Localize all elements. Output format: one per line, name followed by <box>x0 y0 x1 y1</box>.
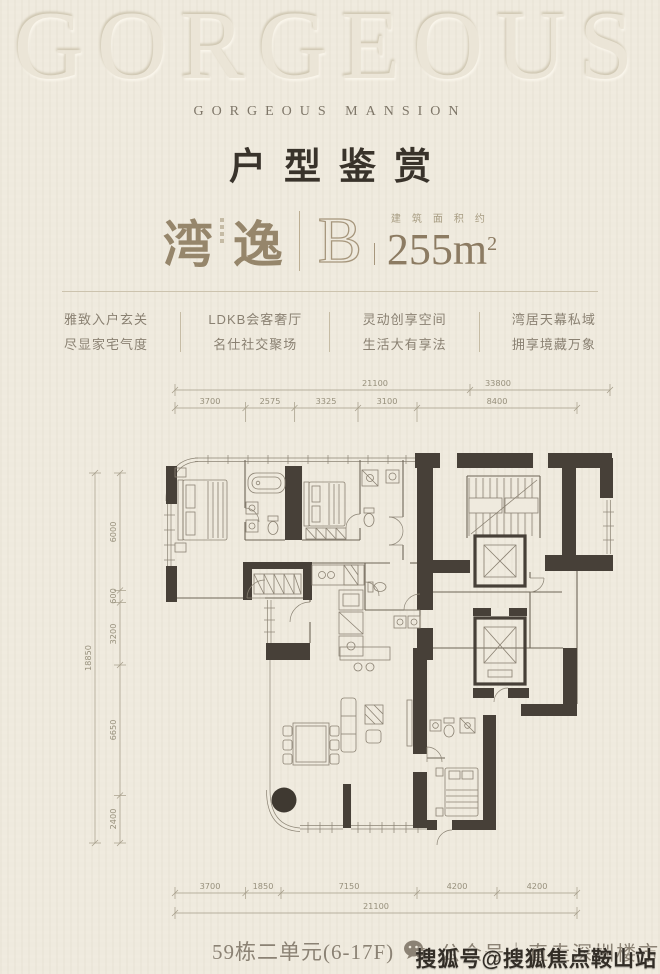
dim-bottom-seg: 4200 <box>527 881 548 891</box>
dining-table-icon <box>283 723 339 765</box>
bed-icon <box>175 468 227 552</box>
page-title: 户型鉴赏 <box>0 136 660 190</box>
dim-top-total-2: 33800 <box>485 378 511 388</box>
wardrobe-icon <box>306 528 346 539</box>
dim-top-seg: 8400 <box>487 396 508 406</box>
feature-4: 湾居天幕私域 拥享境藏万象 <box>488 307 620 358</box>
feature-3: 灵动创享空间 生活大有享法 <box>339 307 471 358</box>
dim-top-total-1: 21100 <box>362 378 388 388</box>
sohu-watermark: 搜狐号@搜狐焦点鞍山站 <box>416 943 657 973</box>
feature-1-line-1: 雅致入户玄关 <box>40 307 172 332</box>
feature-2: LDKB会客奢厅 名仕社交聚场 <box>189 307 321 358</box>
bed-icon <box>436 768 478 816</box>
dim-bottom-seg: 7150 <box>339 881 360 891</box>
floorplan-diagram: 21100 33800 3700 2575 3325 3100 8400 188… <box>58 370 634 926</box>
toilet-icon <box>268 516 278 535</box>
washer-icon <box>386 470 399 483</box>
shower-icon <box>460 718 475 733</box>
area-exponent: 2 <box>487 233 497 255</box>
feature-1: 雅致入户玄关 尽显家宅气度 <box>40 307 172 358</box>
dim-bottom-seg: 1850 <box>253 881 274 891</box>
sink-icon <box>430 720 441 731</box>
feature-columns: 雅致入户玄关 尽显家宅气度 LDKB会客奢厅 名仕社交聚场 灵动创享空间 生活大… <box>40 307 620 358</box>
elevator-icon <box>475 536 525 586</box>
wardrobe-icon <box>254 574 301 594</box>
unit-name: 湾 逸 <box>163 218 283 273</box>
sofa-icon <box>341 698 412 752</box>
bathtub-icon <box>248 473 285 493</box>
dim-top-seg: 3100 <box>377 396 398 406</box>
dim-left-seg: 6000 <box>108 522 118 543</box>
vertical-divider <box>299 211 300 271</box>
dim-left-total: 18850 <box>83 645 93 671</box>
dim-bottom-seg: 3700 <box>200 881 221 891</box>
unit-name-seal <box>220 218 224 243</box>
area-value: 255m2 <box>387 228 497 272</box>
area-block: 建筑面积约 255m2 <box>387 210 497 272</box>
horizontal-divider <box>62 291 598 292</box>
unit-name-char-2: 逸 <box>233 218 283 273</box>
toilet-icon <box>364 508 374 527</box>
small-divider <box>374 243 375 265</box>
dim-bottom-seg: 4200 <box>447 881 468 891</box>
dim-bottom-total: 21100 <box>363 901 389 911</box>
dim-left-seg: 2400 <box>108 809 118 830</box>
area-number: 255m <box>387 225 487 274</box>
building-info: 59栋二单元(6-17F) <box>212 936 394 966</box>
area-prefix-label: 建筑面积约 <box>391 210 496 225</box>
dim-top-seg: 3325 <box>316 396 337 406</box>
embossed-watermark-word: GORGEOUS <box>0 0 660 101</box>
feature-4-line-2: 拥享境藏万象 <box>488 332 620 357</box>
unit-title-row: 湾 逸 B 建筑面积约 255m2 <box>0 210 660 273</box>
unit-name-char-1: 湾 <box>163 218 213 273</box>
feature-4-line-1: 湾居天幕私域 <box>488 307 620 332</box>
stairs-icon <box>469 478 538 536</box>
feature-2-line-2: 名仕社交聚场 <box>189 332 321 357</box>
feature-1-line-2: 尽显家宅气度 <box>40 332 172 357</box>
shower-icon <box>362 470 378 486</box>
console-table-icon <box>340 647 390 671</box>
dim-left-seg: 6650 <box>108 720 118 741</box>
feature-divider <box>329 312 330 352</box>
washer-icon <box>394 616 420 628</box>
bed-icon <box>304 482 345 526</box>
feature-2-line-1: LDKB会客奢厅 <box>189 307 321 332</box>
unit-type-letter: B <box>318 210 362 273</box>
column-icon <box>272 788 297 813</box>
feature-3-line-1: 灵动创享空间 <box>339 307 471 332</box>
dim-top-seg: 2575 <box>260 396 281 406</box>
elevator-icon <box>475 618 525 684</box>
brand-subtitle: GORGEOUS MANSION <box>0 104 660 120</box>
sink-icon <box>246 502 258 532</box>
feature-3-line-2: 生活大有享法 <box>339 332 471 357</box>
toilet-icon <box>444 718 454 737</box>
feature-divider <box>479 312 480 352</box>
kitchen-counter-icon <box>312 565 364 656</box>
dim-top-seg: 3700 <box>200 396 221 406</box>
dim-left-seg: 600 <box>108 588 118 604</box>
dim-left-seg: 3200 <box>108 624 118 645</box>
feature-divider <box>180 312 181 352</box>
